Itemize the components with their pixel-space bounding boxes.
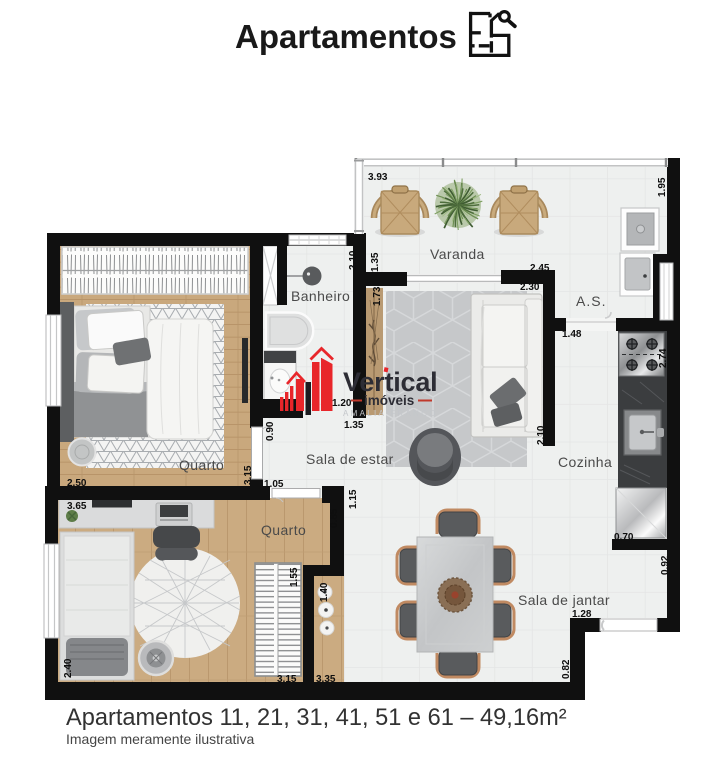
svg-text:Banheiro: Banheiro [291, 288, 350, 304]
svg-text:imóveis: imóveis [364, 393, 414, 408]
svg-text:Sala de jantar: Sala de jantar [518, 592, 610, 608]
svg-text:2.30: 2.30 [520, 282, 540, 293]
svg-text:3.15: 3.15 [243, 465, 254, 485]
svg-text:2.45: 2.45 [530, 263, 550, 274]
svg-text:Varanda: Varanda [430, 246, 485, 262]
svg-text:1.05: 1.05 [264, 479, 284, 490]
svg-text:2.50: 2.50 [67, 478, 87, 489]
svg-text:0.82: 0.82 [561, 659, 572, 679]
svg-text:0.70: 0.70 [614, 532, 634, 543]
svg-text:3.15: 3.15 [277, 674, 297, 685]
svg-text:A.S.: A.S. [576, 293, 606, 309]
svg-text:1.73: 1.73 [372, 286, 383, 306]
svg-text:Quarto: Quarto [261, 522, 306, 538]
svg-text:AMALIA FRANCO: AMALIA FRANCO [343, 409, 438, 418]
svg-text:1.20: 1.20 [332, 398, 352, 409]
svg-text:Apartamentos: Apartamentos [235, 18, 457, 55]
svg-text:1.95: 1.95 [657, 177, 668, 197]
svg-text:Cozinha: Cozinha [558, 454, 612, 470]
svg-text:1.35: 1.35 [370, 252, 381, 272]
svg-text:2.74: 2.74 [658, 348, 669, 368]
svg-text:Imagem meramente ilustrativa: Imagem meramente ilustrativa [66, 731, 255, 747]
svg-text:2.10: 2.10 [348, 250, 359, 270]
svg-text:Quarto: Quarto [179, 457, 224, 473]
svg-text:1.40: 1.40 [319, 582, 330, 602]
svg-text:3.35: 3.35 [316, 674, 336, 685]
svg-text:1.28: 1.28 [572, 609, 592, 620]
svg-text:1.55: 1.55 [289, 567, 300, 587]
svg-text:3.93: 3.93 [368, 172, 388, 183]
svg-text:1.48: 1.48 [562, 329, 582, 340]
svg-text:Apartamentos 11, 21, 31, 41, 5: Apartamentos 11, 21, 31, 41, 51 e 61 – 4… [66, 705, 567, 731]
svg-text:0.85: 0.85 [329, 508, 340, 528]
svg-text:Sala de estar: Sala de estar [306, 451, 394, 467]
svg-text:0.92: 0.92 [660, 555, 671, 575]
svg-text:0.90: 0.90 [265, 421, 276, 441]
svg-text:2.40: 2.40 [63, 658, 74, 678]
svg-text:1.35: 1.35 [344, 420, 364, 431]
svg-text:1.15: 1.15 [348, 489, 359, 509]
svg-text:3.65: 3.65 [67, 501, 87, 512]
svg-text:2.10: 2.10 [536, 425, 547, 445]
